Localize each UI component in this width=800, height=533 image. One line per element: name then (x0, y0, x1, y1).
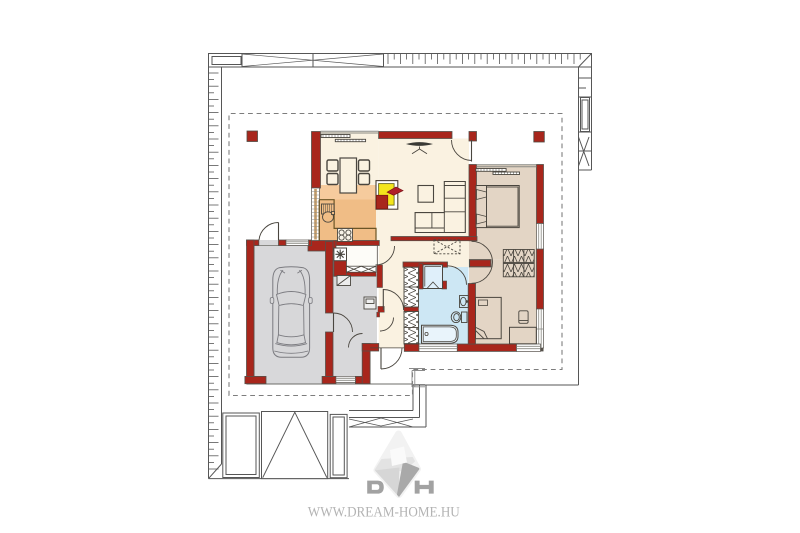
svg-text:WWW.DREAM-HOME.HU: WWW.DREAM-HOME.HU (308, 505, 460, 521)
